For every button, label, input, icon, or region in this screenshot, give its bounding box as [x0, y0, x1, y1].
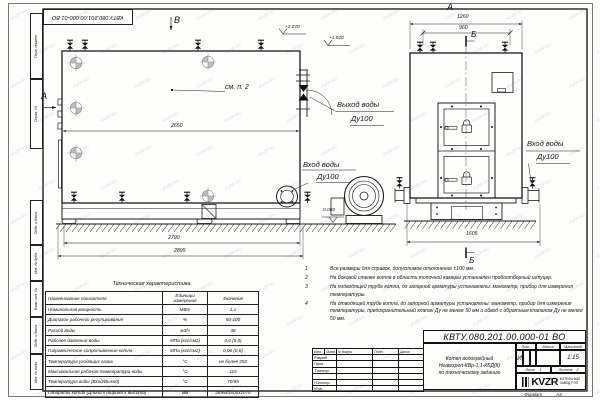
spec-cell: % — [163, 315, 208, 325]
spec-cell: °С — [163, 356, 208, 366]
dim-2790: 2790 — [168, 236, 180, 241]
spec-cell: Диапазон рабочего регулирования — [46, 315, 163, 325]
scale-value: 1:15 — [560, 350, 586, 366]
dim-960: 960 — [459, 26, 468, 31]
product-name: Котел водогрейный Heatexpert-КВр-1,1-КБД… — [423, 343, 516, 390]
margin-box-vzam-inv: Взам. инв. № — [30, 281, 44, 317]
margin-box-inv-podl: Инв. № подл. — [30, 354, 44, 390]
company-logo-cell: KVZR КОТЕЛЬНЫЙ ЗАВОД РЭП — [516, 373, 586, 390]
inlet-water-label-left: Вход воды — [303, 161, 339, 169]
spec-cell: Расход воды — [46, 325, 163, 335]
spec-cell: 0,6 (6,0) — [208, 335, 259, 345]
format-value: А3 — [556, 392, 562, 397]
note-item: 1 Все размеры для справок, допустимое от… — [305, 266, 586, 274]
top-stamp-box: КВТУ.080.201.00.000-01 ВО — [43, 9, 133, 25]
side-pipes — [395, 178, 539, 204]
kvzr-logo-icon — [522, 377, 529, 387]
mass-value — [536, 350, 560, 366]
spec-row: Температура воды (Вход/Выход)°С70/95 — [46, 377, 259, 387]
lit-label: Лит. — [516, 343, 536, 350]
tb-grid-cell — [337, 386, 373, 392]
spec-header: Значение — [208, 292, 259, 305]
scale-label: Масштаб — [560, 343, 586, 350]
tb-grid-cell — [373, 386, 399, 392]
spec-row: Номинальная мощностьМВт1,1 — [46, 305, 259, 315]
outlet-water-label: Выход воды — [337, 101, 379, 109]
spec-cell: Температура воды (Вход/Выход) — [46, 377, 163, 387]
title-block-signature-grid: Изм. Лист N докум. Подп. Дата Разраб. Пр… — [312, 348, 424, 392]
note-text: На отводящей трубе котла, до запорной ар… — [330, 301, 586, 324]
note-item: 2 На боковой стенке котла в области топо… — [305, 275, 586, 283]
lit-value: И — [516, 350, 523, 366]
spec-cell: °С — [163, 366, 208, 376]
sheet-cell: Лист1 — [516, 366, 551, 373]
inlet-water-label-right: Вход воды — [527, 140, 563, 148]
margin-box-perv-primen: Перв. примен. — [30, 13, 44, 79]
note-text: На подводящей трубе котла, до запорной а… — [330, 284, 586, 299]
spec-row: Максимальная рабочая температура воды°С1… — [46, 366, 259, 376]
elevation-0: 0.000 — [323, 209, 335, 214]
tb-row-label: Утв. — [313, 386, 337, 392]
elevation-2070: +2,070 — [285, 26, 300, 31]
spec-cell: 115 — [208, 366, 259, 376]
spec-cell: м3/ч — [163, 325, 208, 335]
note-number: 1 — [305, 266, 330, 274]
format-strip: Формат А3 — [500, 392, 586, 397]
spec-header: Единицы измерения — [163, 292, 208, 305]
note-item: 3 На подводящей трубе котла, до запорной… — [305, 284, 586, 299]
spec-cell: Гидравлическое сопротивление котла — [46, 346, 163, 356]
margin-box-podp-data-2: Подп. и дата — [30, 317, 44, 354]
spec-row: Рабочее давление водыМПа (кгс/см2)0,6 (6… — [46, 335, 259, 345]
margin-box-sprav: Справ. № — [30, 79, 44, 149]
boiler-side-view — [44, 17, 396, 260]
spec-cell: Номинальная мощность — [46, 305, 163, 315]
spec-row: Гидравлическое сопротивление котлаМПа (к… — [46, 346, 259, 356]
spec-cell: Рабочее давление воды — [46, 335, 163, 345]
spec-cell: 38 — [208, 325, 259, 335]
mass-label: Масса — [536, 343, 560, 350]
spec-table: Техническая характеристика Наименование … — [45, 281, 258, 398]
spec-cell: МПа (кгс/см2) — [163, 346, 208, 356]
inlet-dn-label-right: Ду100 — [537, 153, 559, 161]
spec-cell: 2895х1605х2070 — [208, 387, 259, 397]
notes-list: 1 Все размеры для справок, допустимое от… — [305, 266, 586, 325]
spec-row: Температура уходящих газов°Сне более 250 — [46, 356, 259, 366]
note-number: 3 — [305, 284, 330, 299]
spec-cell: 1,1 — [208, 305, 259, 315]
spec-cell: Габариты котла (Длина х ширина х высота) — [46, 387, 163, 397]
company-name: КОТЕЛЬНЫЙ ЗАВОД РЭП — [560, 378, 580, 386]
spec-cell: Температура уходящих газов — [46, 356, 163, 366]
outlet-dn-label: Ду100 — [351, 115, 373, 123]
dim-2895: 2895 — [174, 249, 186, 254]
spec-cell: мм — [163, 387, 208, 397]
spec-cell: 0,06 (0,6) — [208, 346, 259, 356]
spec-cell: 70/95 — [208, 377, 259, 387]
spec-row: Расход водым3/ч38 — [46, 325, 259, 335]
note-item: 4 На отводящей трубе котла, до запорной … — [305, 301, 586, 324]
spec-cell: МПа (кгс/см2) — [163, 335, 208, 345]
note-text: Все размеры для справок, допустимое откл… — [330, 266, 586, 274]
see-note-label: см. п. 2 — [225, 84, 249, 91]
top-stamp-text: КВТУ.080.201.00.000-01 ВО — [52, 14, 123, 20]
note-number: 4 — [305, 301, 330, 324]
kvzr-logo-text: KVZR — [531, 376, 558, 388]
spec-cell: °С — [163, 377, 208, 387]
spec-cell: не более 250 — [208, 356, 259, 366]
view-label-b: В — [174, 16, 180, 25]
elevation-1920: +1,920 — [329, 37, 344, 42]
spec-header: Наименование показателя — [46, 292, 163, 305]
view-label-a-side: А — [41, 92, 47, 101]
spec-row: Диапазон рабочего регулирования%50-100 — [46, 315, 259, 325]
format-label: Формат — [524, 392, 542, 397]
spec-cell: Максимальная рабочая температура воды — [46, 366, 163, 376]
spec-cell: МВт — [163, 305, 208, 315]
dim-2650: 2650 — [171, 124, 183, 129]
drawing-sheet: KVZR.RUKVZR.RUKVZR.RUKVZR.RUKVZR.RUKVZR.… — [0, 0, 600, 400]
title-block: КВТУ.080.201.00.000-01 ВО Изм. Лист N до… — [312, 330, 586, 390]
blower-fan — [331, 177, 384, 224]
inlet-dn-label-left: Ду100 — [317, 173, 339, 181]
dim-1605: 1605 — [466, 232, 478, 237]
section-label-b-bottom: Б — [469, 257, 474, 265]
spec-row: Габариты котла (Длина х ширина х высота)… — [46, 387, 259, 397]
margin-box-podp-data-1: Подп. и дата — [30, 200, 44, 245]
view-label-a-top: А — [447, 3, 453, 12]
outlet-pipe — [296, 70, 332, 117]
sheets-cell: Листов2 — [551, 366, 586, 373]
margin-box-inv-dubl: Инв. № дубл. — [30, 245, 44, 281]
section-label-b-top: Б — [471, 31, 476, 39]
doc-number: КВТУ.080.201.00.000-01 ВО — [423, 330, 586, 343]
spec-table-title: Техническая характеристика — [45, 281, 258, 291]
spec-cell: 50-100 — [208, 315, 259, 325]
note-text: На боковой стенке котла в области топочн… — [330, 275, 586, 283]
tb-grid-cell — [399, 386, 424, 392]
furnace-doors — [438, 103, 495, 198]
dim-1260: 1260 — [457, 15, 469, 20]
note-number: 2 — [305, 275, 330, 283]
